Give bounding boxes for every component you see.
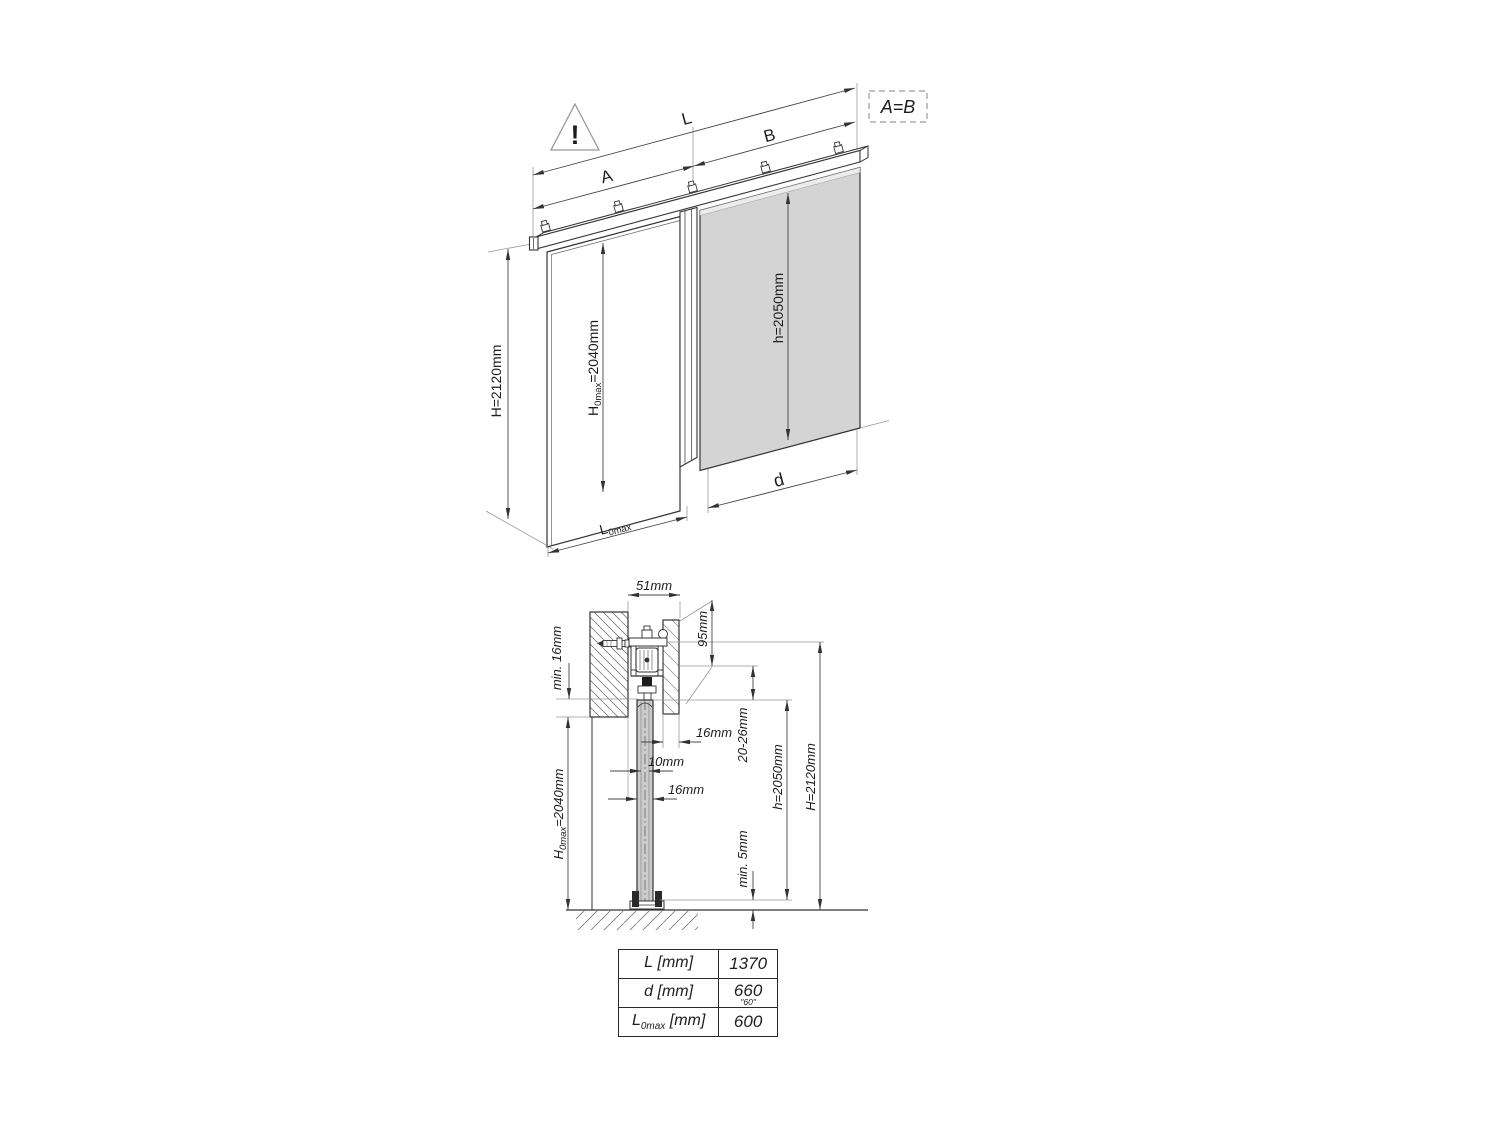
label-51mm: 51mm xyxy=(636,578,672,593)
spec-table: L [mm] 1370 d [mm] 660"60" L0max [mm] 60… xyxy=(618,949,778,1037)
label-min5: min. 5mm xyxy=(735,830,750,887)
isometric-view: ! xyxy=(486,83,927,557)
floor-line xyxy=(566,910,868,930)
table-row-L: L [mm] 1370 xyxy=(619,950,778,979)
label-95mm: 95mm xyxy=(695,611,710,647)
label-h-section: h=2050mm xyxy=(770,744,785,810)
cross-section-view: 51mm 95mm min. 16mm H0max=2040mm 20-26mm… xyxy=(549,578,868,930)
label-H-section: H=2120mm xyxy=(803,743,818,811)
warning-glyph: ! xyxy=(571,120,580,150)
label-B: B xyxy=(762,125,778,146)
table-label-L0max: L0max [mm] xyxy=(619,1008,719,1037)
label-H: H=2120mm xyxy=(488,345,504,418)
door-edge-panel xyxy=(680,208,697,468)
table-value-L: 1370 xyxy=(719,950,778,979)
table-label-L: L [mm] xyxy=(619,950,719,979)
label-d: d xyxy=(771,469,786,491)
technical-drawing-page: ! xyxy=(0,0,1500,1125)
table-row-d: d [mm] 660"60" xyxy=(619,979,778,1008)
label-16mm-door: 16mm xyxy=(668,782,704,797)
table-value-L0max: 600 xyxy=(719,1008,778,1037)
doorway-opening xyxy=(547,217,680,548)
warning-icon: ! xyxy=(551,104,599,150)
table-value-d-note: "60" xyxy=(740,999,756,1006)
roller-carriage xyxy=(629,626,668,700)
wall-section xyxy=(590,612,628,910)
equality-label: A=B xyxy=(880,97,916,117)
table-label-d: d [mm] xyxy=(619,979,719,1008)
label-H0max-section: H0max=2040mm xyxy=(551,768,569,859)
label-h: h=2050mm xyxy=(770,273,786,343)
label-L: L xyxy=(680,108,694,129)
label-16mm-fascia: 16mm xyxy=(696,725,732,740)
equality-badge: A=B xyxy=(869,91,927,122)
door-panel-section xyxy=(637,700,653,903)
label-A: A xyxy=(599,166,616,187)
table-value-d: 660"60" xyxy=(719,979,778,1008)
label-min16: min. 16mm xyxy=(549,626,564,690)
label-2026: 20-26mm xyxy=(735,707,750,763)
table-row-L0max: L0max [mm] 600 xyxy=(619,1008,778,1037)
label-10mm: 10mm xyxy=(648,754,684,769)
